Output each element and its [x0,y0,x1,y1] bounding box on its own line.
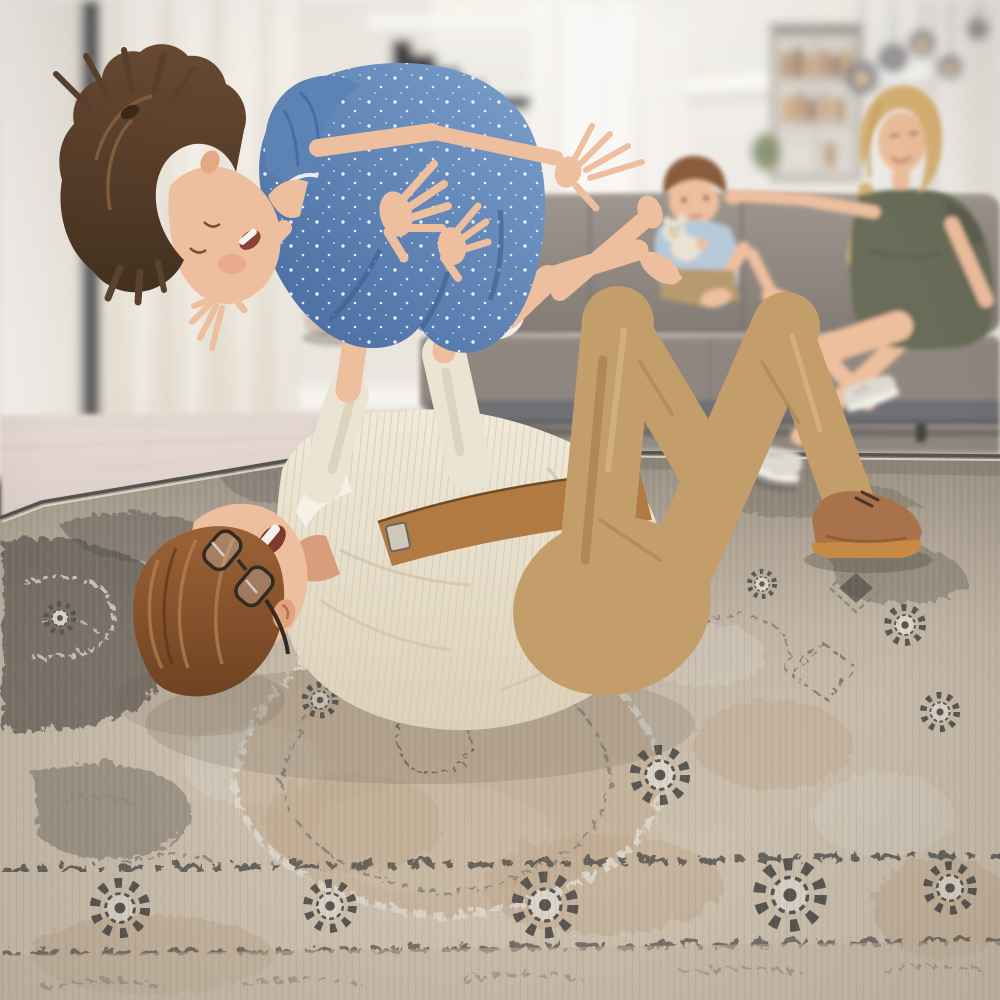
photo-canvas: A laughing father lies on a large distre… [0,0,1000,1000]
vignette-overlay [0,0,1000,1000]
family-living-room-rug-photo: A laughing father lies on a large distre… [0,0,1000,1000]
